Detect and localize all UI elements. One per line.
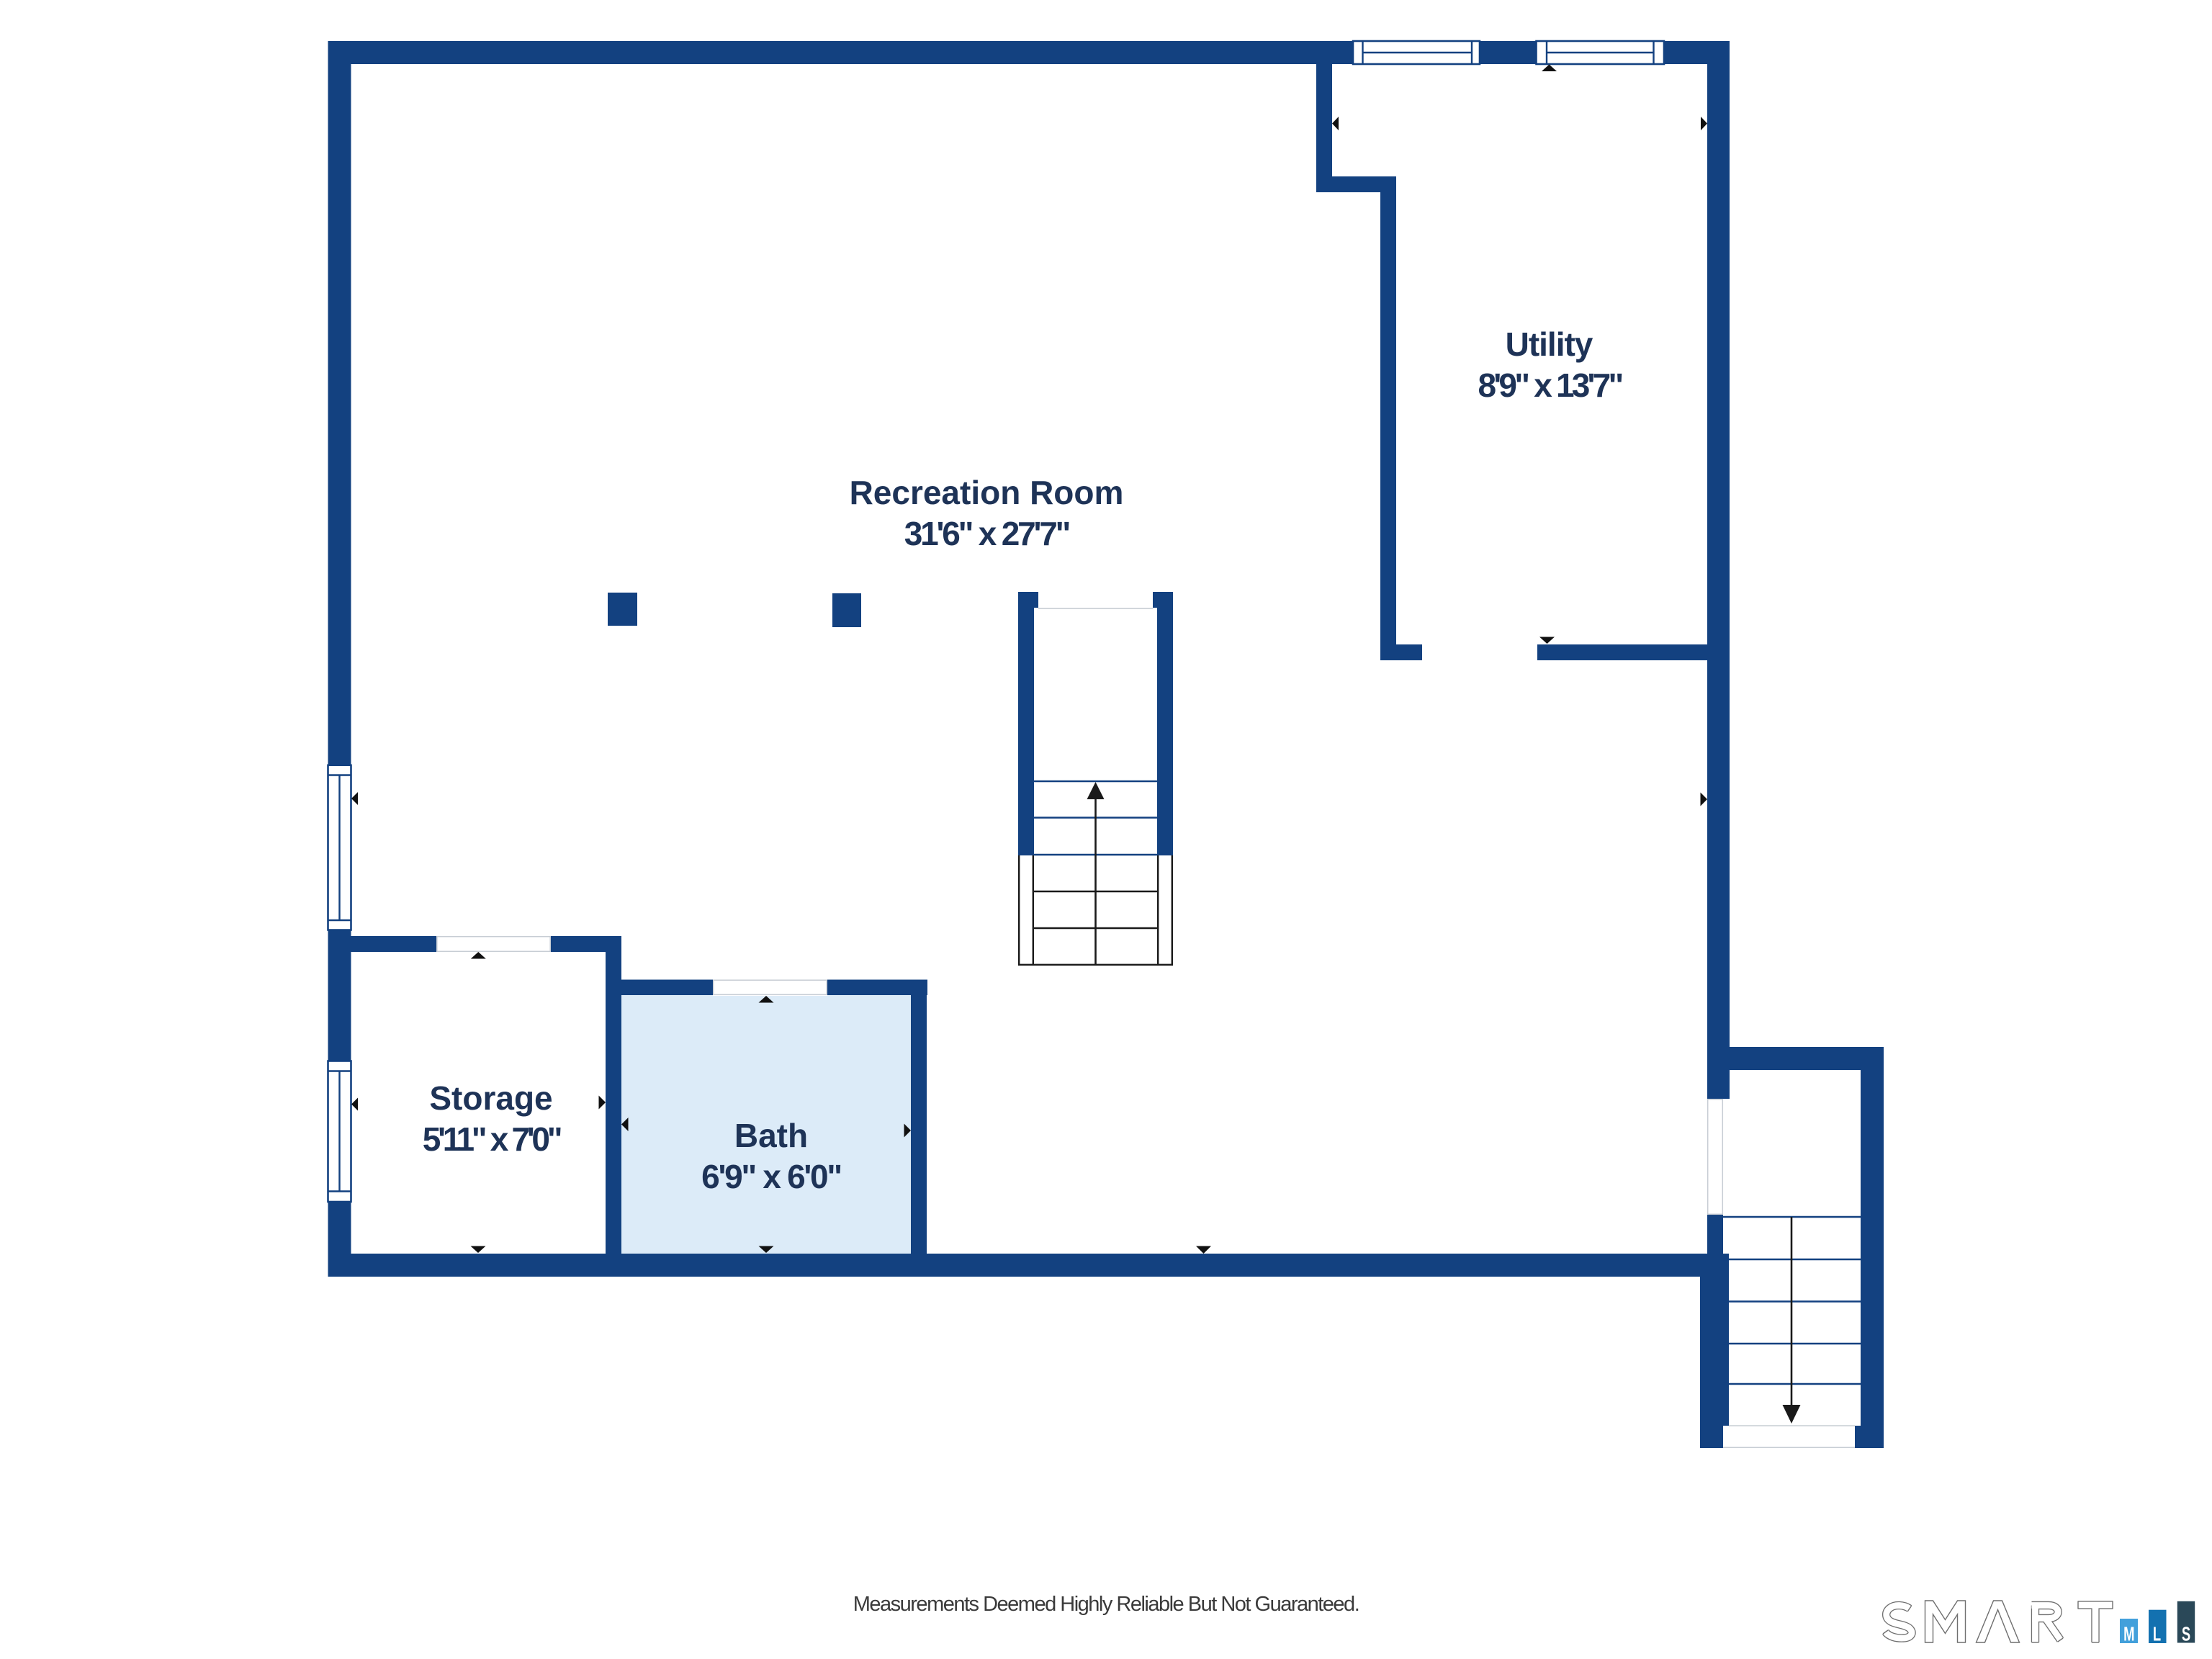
svg-text:L: L [2153,1624,2161,1646]
svg-text:Measurements Deemed Highly Rel: Measurements Deemed Highly Reliable But … [853,1593,1359,1616]
svg-text:Bath: Bath [734,1117,808,1154]
svg-text:8'9" x 13'7": 8'9" x 13'7" [1478,367,1622,404]
svg-text:Recreation Room: Recreation Room [850,474,1124,511]
svg-text:5'11" x 7'0": 5'11" x 7'0" [423,1120,561,1158]
svg-text:S: S [2182,1624,2190,1646]
svg-text:31'6" x 27'7": 31'6" x 27'7" [904,515,1069,552]
svg-text:Storage: Storage [429,1079,552,1117]
svg-text:6'9" x 6'0": 6'9" x 6'0" [701,1158,841,1195]
svg-text:M: M [2123,1624,2134,1646]
svg-text:Utility: Utility [1506,325,1593,363]
